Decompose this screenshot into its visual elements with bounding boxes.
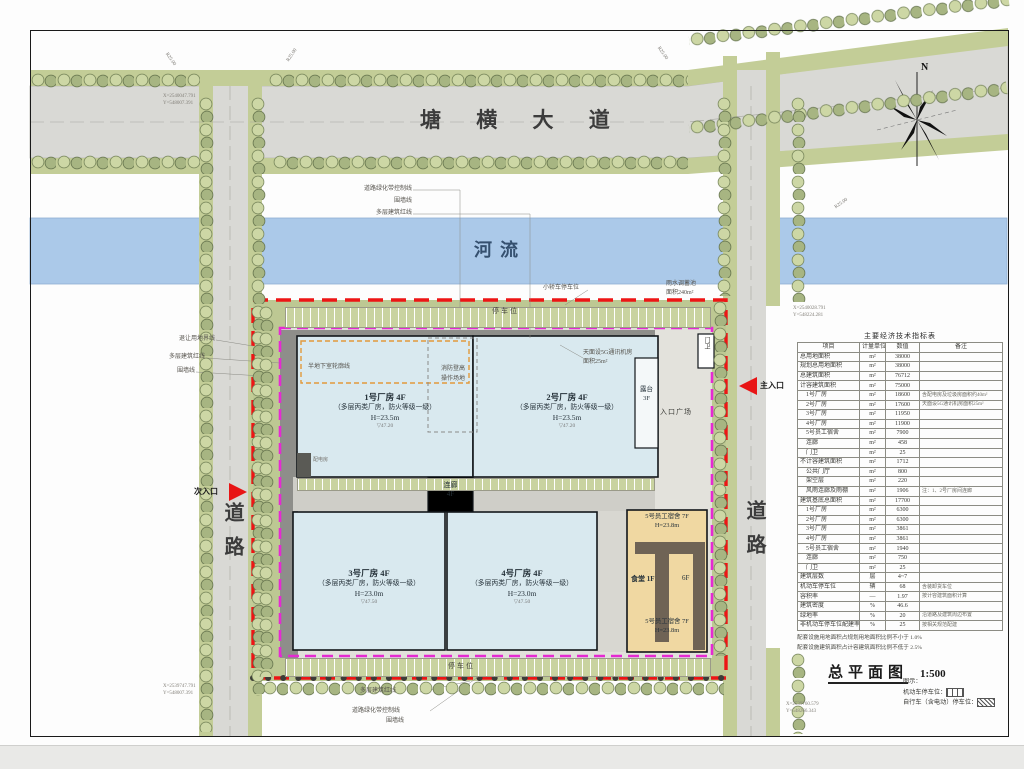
dorm-top-name: 5号员工宿舍 7F — [628, 513, 706, 522]
factory-1-label: 1号厂房 4F （多层丙类厂房，防火等级一级） H=23.5m ▽47.20 — [305, 392, 465, 430]
col-remark: 备注 — [920, 343, 1003, 353]
factory-3-label: 3号厂房 4F （多层丙类厂房，防火等级一级） H=23.0m ▽47.50 — [297, 568, 441, 606]
table-row: 1号厂房m²6300 — [798, 506, 1003, 516]
table-row: 不计容建筑面积m²1712 — [798, 458, 1003, 468]
table-row: 连廊m²750 — [798, 554, 1003, 564]
table-row: 规划总用地面积m²38000 — [798, 362, 1003, 372]
table-row: 2号厂房m²17600天面设5G通讯机房面积25m² — [798, 400, 1003, 410]
dorm-bottom-height: H=23.8m — [628, 627, 706, 636]
factory-4-name: 4号厂房 4F — [451, 568, 593, 579]
factory-2-spec: （多层丙类厂房，防火等级一级） — [487, 403, 647, 412]
annotation-bottom-3: 围墙线 — [386, 718, 404, 726]
legend-heading: 图示： — [903, 677, 995, 688]
coord-y: Y=548266.343 — [786, 709, 819, 716]
annotation-bottom-1: 多层建筑红线 — [360, 688, 396, 696]
dorm-bottom-label: 5号员工宿舍 7F H=23.8m — [628, 618, 706, 635]
table-row: 风雨连廊及雨棚m²1906注：1、2号厂房间连廊 — [798, 486, 1003, 496]
factory-4-label: 4号厂房 4F （多层丙类厂房，防火等级一级） H=23.0m ▽47.50 — [451, 568, 593, 606]
coord-x: X=2540028.791 — [793, 306, 826, 313]
plaza-label: 入口广场 — [660, 407, 692, 417]
main-road-name: 塘 横 大 道 — [420, 104, 625, 134]
drawing-title: 总平面图 — [828, 665, 908, 684]
factory-4-height: H=23.0m — [451, 589, 593, 599]
table-header-row: 项目 计量单位 数值 备注 — [798, 343, 1003, 353]
dorm-bottom-name: 5号员工宿舍 7F — [628, 618, 706, 627]
radius-label: R25.00 — [163, 52, 176, 68]
annotation-left-2: 多层建筑红线 — [135, 354, 205, 362]
table-row: 计容建筑面积m²75000 — [798, 381, 1003, 391]
table-row: 5号员工宿舍m²1940 — [798, 544, 1003, 554]
annotation-left-3: 围墙线 — [125, 368, 195, 376]
fire-area-line2: 操作场地 — [432, 376, 474, 384]
table-row: 总用地面积m²38000 — [798, 352, 1003, 362]
table-row: 门卫m²25 — [798, 563, 1003, 573]
corridor-label: 连廊 4F — [428, 481, 473, 500]
table-note-1: 配套设施用地面积占规划用地面积比例不小于 1.0% — [797, 633, 1003, 641]
dorm-top-height: H=23.8m — [628, 522, 706, 531]
indicator-table: 主要经济技术指标表 项目 计量单位 数值 备注 总用地面积m²38000规划总用… — [797, 331, 1003, 651]
factory-3-height: H=23.0m — [297, 589, 441, 599]
legend-item-bike: 自行车（含电动）停车位： — [903, 698, 995, 709]
coord-x: X=2540047.791 — [163, 94, 196, 101]
table-row: 架空层m²220 — [798, 477, 1003, 487]
left-road-name: 道路 — [218, 502, 247, 570]
table-row: 总建筑面积m²76712 — [798, 371, 1003, 381]
table-row: 3号厂房m²11950 — [798, 410, 1003, 420]
table-row: 5号员工宿舍m²7900 — [798, 429, 1003, 439]
table-row: 4号厂房m²3861 — [798, 534, 1003, 544]
factory-1-name: 1号厂房 4F — [305, 392, 465, 403]
secondary-entrance-label: 次入口 — [194, 486, 218, 497]
col-item: 项目 — [798, 343, 860, 353]
coordinate-label: X=2540047.791 Y=548007.391 — [163, 94, 196, 107]
table-row: 机动车停车位辆68含装卸货车位 — [798, 582, 1003, 592]
table-row: 建筑基底总面积m²17700 — [798, 496, 1003, 506]
roof-note-line1: 天面设5G通讯机房 — [583, 350, 632, 358]
factory-1-elevation: ▽47.20 — [305, 423, 465, 430]
corridor-name: 连廊 — [428, 481, 473, 490]
col-unit: 计量单位 — [860, 343, 886, 353]
factory-2-label: 2号厂房 4F （多层丙类厂房，防火等级一级） H=23.5m ▽47.20 — [487, 392, 647, 430]
table-note-2: 配套设施建筑面积占计容建筑面积比例不低于 2.5% — [797, 643, 1003, 651]
factory-4-spec: （多层丙类厂房，防火等级一级） — [451, 579, 593, 588]
north-label: N — [921, 62, 928, 73]
factory-3-name: 3号厂房 4F — [297, 568, 441, 579]
col-value: 数值 — [886, 343, 920, 353]
legend-item-car: 机动车停车位： — [903, 688, 995, 699]
table-row: 建筑密度%46.6 — [798, 602, 1003, 612]
right-road-name: 道路 — [740, 500, 769, 568]
table-row: 非机动车停车位配建率%25按相关规范配建 — [798, 621, 1003, 631]
canteen-right-label: 6F — [682, 574, 689, 582]
factory-2-height: H=23.5m — [487, 413, 647, 423]
factory-2-name: 2号厂房 4F — [487, 392, 647, 403]
parking-label-north: 停车位 — [492, 306, 519, 316]
gatehouse-label: 门卫 — [702, 337, 711, 349]
bike-parking-symbol — [977, 698, 995, 707]
pond-note-line1: 雨水调蓄池 — [666, 281, 696, 289]
table-row: 门卫m²25 — [798, 448, 1003, 458]
coord-y: Y=548224.281 — [793, 313, 826, 320]
radius-label: R25.00 — [655, 46, 668, 62]
coordinate-label: X=2540028.791 Y=548224.281 — [793, 306, 826, 319]
factory-1-spec: （多层丙类厂房，防火等级一级） — [305, 403, 465, 412]
table-row: 容积率—1.97按计容建筑面积计算 — [798, 592, 1003, 602]
annotation-left-1: 退让用地界线 — [145, 336, 215, 344]
car-parking-note: 小轿车停车位 — [543, 285, 579, 293]
terrace-label: 露台 3F — [634, 386, 659, 404]
radius-label: R25.00 — [286, 48, 299, 64]
table-row: 绿地率%20沿道路及建筑周边布置 — [798, 611, 1003, 621]
table-row: 公共门厅m²800 — [798, 467, 1003, 477]
main-entrance-label: 主入口 — [760, 380, 784, 391]
coordinate-label: X=2539760.579 Y=548266.343 — [786, 702, 819, 715]
terrace-name: 露台 — [634, 386, 659, 395]
factory-3-spec: （多层丙类厂房，防火等级一级） — [297, 579, 441, 588]
legend: 图示： 机动车停车位： 自行车（含电动）停车位： — [903, 677, 995, 709]
factory-2-elevation: ▽47.20 — [487, 423, 647, 430]
indicator-table-grid: 项目 计量单位 数值 备注 总用地面积m²38000规划总用地面积m²38000… — [797, 342, 1003, 631]
radius-label: R25.00 — [834, 198, 850, 211]
river-name: 河流 — [474, 236, 526, 262]
annotation-top-3: 多层建筑红线 — [322, 210, 412, 218]
parking-label-south: 停车位 — [448, 661, 475, 671]
annotation-top-2: 围墙线 — [322, 198, 412, 206]
table-row: 连廊m²458 — [798, 438, 1003, 448]
table-row: 2号厂房m²6300 — [798, 515, 1003, 525]
indicator-table-title: 主要经济技术指标表 — [797, 331, 1003, 341]
fire-area-line1: 消防登高 — [432, 366, 474, 374]
corridor-floors: 4F — [428, 490, 473, 499]
table-row: 建筑层数层4~7 — [798, 573, 1003, 583]
canteen-label: 食堂 1F — [631, 574, 655, 584]
table-row: 1号厂房m²18600含配电房及垃圾房面积约40m² — [798, 390, 1003, 400]
factory-4-elevation: ▽47.50 — [451, 599, 593, 606]
site-plan-page: { "roads": { "main": "塘 横 大 道", "river":… — [0, 0, 1024, 768]
annotation-bottom-2: 道路绿化带控制线 — [352, 708, 400, 716]
indicator-table-body: 总用地面积m²38000规划总用地面积m²38000总建筑面积m²76712计容… — [798, 352, 1003, 630]
dorm-top-label: 5号员工宿舍 7F H=23.8m — [628, 513, 706, 530]
factory-3-elevation: ▽47.50 — [297, 599, 441, 606]
coord-y: Y=548007.391 — [163, 691, 196, 698]
table-row: 3号厂房m²3861 — [798, 525, 1003, 535]
substation-label: 配电房 — [313, 458, 328, 464]
factory-1-height: H=23.5m — [305, 413, 465, 423]
pond-note-line2: 面积240m² — [666, 290, 693, 298]
terrace-floors: 3F — [634, 395, 659, 404]
legend-car-label: 机动车停车位： — [903, 689, 946, 696]
coord-y: Y=548007.391 — [163, 101, 196, 108]
roof-note-line2: 面积25m² — [583, 359, 607, 367]
coordinate-label: X=2539747.791 Y=548007.391 — [163, 684, 196, 697]
coord-x: X=2539747.791 — [163, 684, 196, 691]
annotation-top-1: 道路绿化带控制线 — [322, 186, 412, 194]
table-row: 4号厂房m²11900 — [798, 419, 1003, 429]
coord-x: X=2539760.579 — [786, 702, 819, 709]
legend-bike-label: 自行车（含电动）停车位： — [903, 699, 977, 706]
car-parking-symbol — [946, 688, 964, 697]
basement-note: 半地下室轮廓线 — [308, 364, 350, 372]
